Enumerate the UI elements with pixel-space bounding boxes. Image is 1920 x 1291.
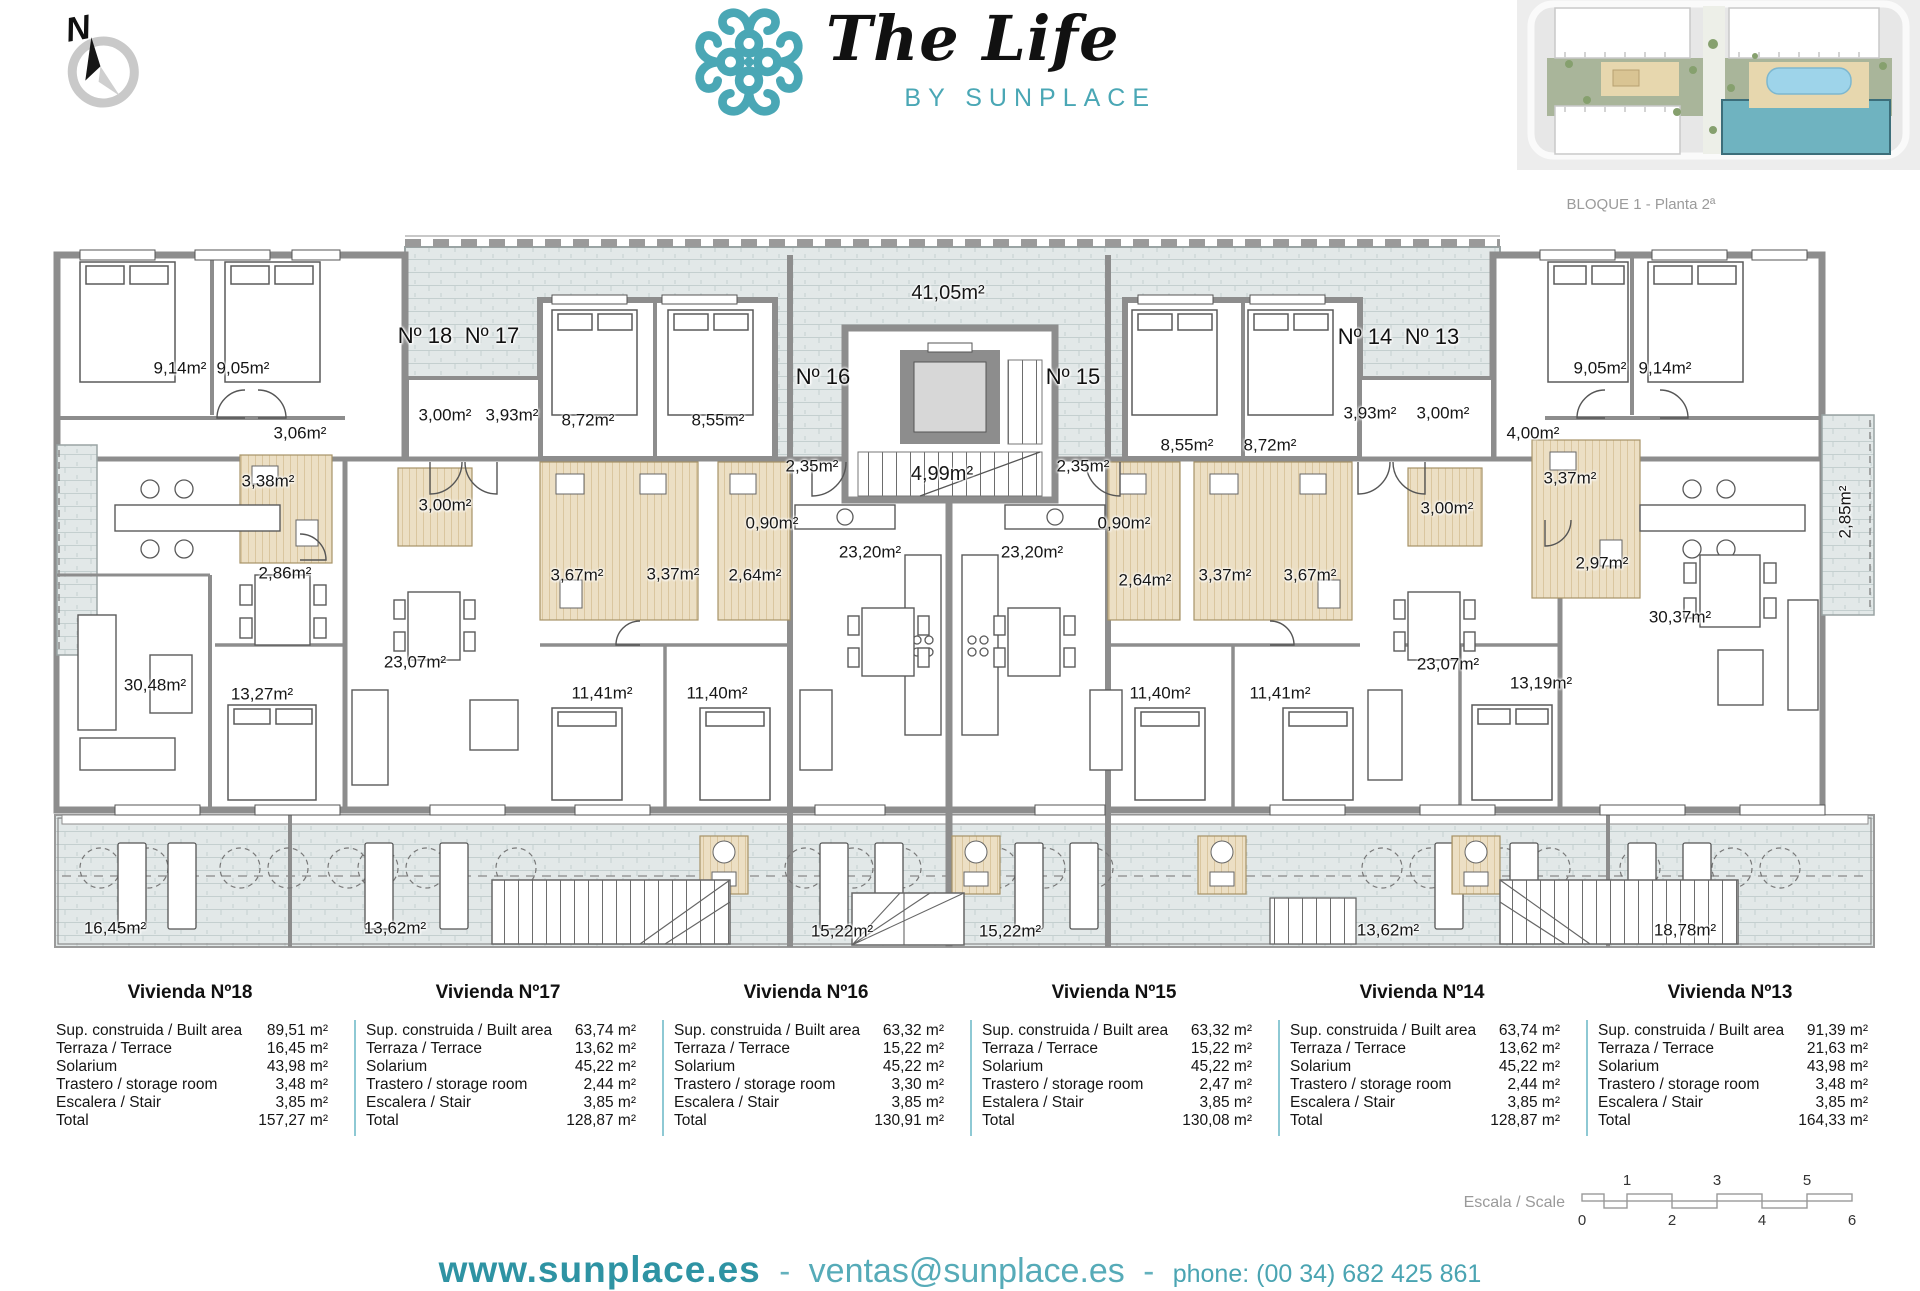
row-label: Trastero / storage room [56,1076,217,1094]
scale-bar [1570,1188,1870,1216]
row-value: 2,44 m² [1507,1076,1560,1094]
row-value: 63,32 m² [1191,1022,1252,1040]
vivienda-table: Vivienda Nº16Sup. construida / Built are… [652,982,960,1136]
vivienda-row: Trastero / storage room3,48 m² [1598,1076,1868,1094]
compass-n-label: N [63,8,95,50]
row-value: 3,48 m² [1815,1076,1868,1094]
row-value: 3,85 m² [1199,1094,1252,1112]
row-value: 45,22 m² [575,1058,636,1076]
vivienda-table: Vivienda Nº15Sup. construida / Built are… [960,982,1268,1136]
row-value: 45,22 m² [883,1058,944,1076]
row-label: Solarium [982,1058,1043,1076]
sunplace-knot-icon [688,4,810,120]
footer-website: www.sunplace.es [439,1249,761,1290]
vivienda-title: Vivienda Nº13 [1586,982,1874,1004]
row-label: Terraza / Terrace [366,1040,482,1058]
vivienda-row: Solarium43,98 m² [1598,1058,1868,1076]
row-label: Escalera / Stair [674,1094,779,1112]
vivienda-row: Estalera / Stair3,85 m² [982,1094,1252,1112]
row-value: 164,33 m² [1798,1112,1868,1130]
row-value: 3,85 m² [891,1094,944,1112]
row-value: 13,62 m² [575,1040,636,1058]
vivienda-row: Escalera / Stair3,85 m² [366,1094,636,1112]
row-value: 43,98 m² [267,1058,328,1076]
row-label: Sup. construida / Built area [1290,1022,1476,1040]
row-value: 2,44 m² [583,1076,636,1094]
row-value: 3,85 m² [583,1094,636,1112]
row-value: 130,91 m² [874,1112,944,1130]
row-label: Solarium [1290,1058,1351,1076]
row-value: 157,27 m² [258,1112,328,1130]
scale-tick-bottom: 6 [1848,1212,1856,1229]
scale-tick-bottom: 4 [1758,1212,1766,1229]
row-label: Escalera / Stair [56,1094,161,1112]
vivienda-row: Total130,08 m² [982,1112,1252,1130]
row-label: Terraza / Terrace [1598,1040,1714,1058]
vivienda-row: Total130,91 m² [674,1112,944,1130]
compass-icon: N [38,6,168,126]
row-value: 128,87 m² [1490,1112,1560,1130]
row-value: 45,22 m² [1499,1058,1560,1076]
row-label: Total [366,1112,399,1130]
row-label: Trastero / storage room [366,1076,527,1094]
scale-label: Escala / Scale [1440,1194,1565,1212]
scale-tick-top: 3 [1713,1172,1721,1189]
vivienda-row: Total128,87 m² [366,1112,636,1130]
row-value: 2,47 m² [1199,1076,1252,1094]
scale-tick-top: 1 [1623,1172,1631,1189]
vivienda-table: Vivienda Nº14Sup. construida / Built are… [1268,982,1576,1136]
row-label: Total [1598,1112,1631,1130]
row-label: Total [674,1112,707,1130]
vivienda-row: Escalera / Stair3,85 m² [674,1094,944,1112]
siteplan-thumbnail [1517,0,1920,170]
vivienda-row: Trastero / storage room3,48 m² [56,1076,328,1094]
row-value: 16,45 m² [267,1040,328,1058]
row-label: Solarium [56,1058,117,1076]
row-value: 21,63 m² [1807,1040,1868,1058]
vivienda-row: Sup. construida / Built area63,74 m² [366,1022,636,1040]
vivienda-tables: Vivienda Nº18Sup. construida / Built are… [36,982,1884,1136]
vivienda-row: Total128,87 m² [1290,1112,1560,1130]
vivienda-title: Vivienda Nº16 [662,982,950,1004]
footer-separator: - [779,1252,790,1289]
vivienda-row: Trastero / storage room3,30 m² [674,1076,944,1094]
vivienda-table: Vivienda Nº13Sup. construida / Built are… [1576,982,1884,1136]
row-value: 63,74 m² [575,1022,636,1040]
vivienda-row: Trastero / storage room2,47 m² [982,1076,1252,1094]
vivienda-row: Sup. construida / Built area63,74 m² [1290,1022,1560,1040]
vivienda-row: Trastero / storage room2,44 m² [366,1076,636,1094]
row-label: Trastero / storage room [982,1076,1143,1094]
siteplan-caption: BLOQUE 1 - Planta 2ª [1556,196,1726,213]
footer-contact: www.sunplace.es - ventas@sunplace.es - p… [0,1249,1920,1291]
vivienda-title: Vivienda Nº14 [1278,982,1566,1004]
row-label: Sup. construida / Built area [674,1022,860,1040]
vivienda-row: Sup. construida / Built area63,32 m² [674,1022,944,1040]
vivienda-table: Vivienda Nº17Sup. construida / Built are… [344,982,652,1136]
floor-plan-drawing [50,230,1880,955]
vivienda-row: Solarium43,98 m² [56,1058,328,1076]
row-value: 45,22 m² [1191,1058,1252,1076]
vivienda-row: Escalera / Stair3,85 m² [1598,1094,1868,1112]
vivienda-row: Solarium45,22 m² [366,1058,636,1076]
row-value: 128,87 m² [566,1112,636,1130]
row-value: 13,62 m² [1499,1040,1560,1058]
row-label: Escalera / Stair [1598,1094,1703,1112]
vivienda-row: Total157,27 m² [56,1112,328,1130]
footer-email: ventas@sunplace.es [809,1252,1125,1290]
vivienda-row: Terraza / Terrace16,45 m² [56,1040,328,1058]
vivienda-table: Vivienda Nº18Sup. construida / Built are… [36,982,344,1136]
row-label: Trastero / storage room [1598,1076,1759,1094]
row-label: Terraza / Terrace [56,1040,172,1058]
row-label: Escalera / Stair [1290,1094,1395,1112]
vivienda-row: Terraza / Terrace15,22 m² [982,1040,1252,1058]
row-label: Total [1290,1112,1323,1130]
row-label: Terraza / Terrace [982,1040,1098,1058]
row-label: Sup. construida / Built area [1598,1022,1784,1040]
vivienda-row: Trastero / storage room2,44 m² [1290,1076,1560,1094]
row-label: Sup. construida / Built area [56,1022,242,1040]
vivienda-row: Terraza / Terrace13,62 m² [366,1040,636,1058]
logo-subtitle: BY SUNPLACE [836,84,1156,113]
row-label: Sup. construida / Built area [366,1022,552,1040]
vivienda-row: Escalera / Stair3,85 m² [1290,1094,1560,1112]
row-value: 63,32 m² [883,1022,944,1040]
row-value: 43,98 m² [1807,1058,1868,1076]
row-label: Solarium [674,1058,735,1076]
vivienda-row: Total164,33 m² [1598,1112,1868,1130]
row-value: 89,51 m² [267,1022,328,1040]
vivienda-row: Sup. construida / Built area91,39 m² [1598,1022,1868,1040]
row-value: 3,48 m² [275,1076,328,1094]
footer-phone: phone: (00 34) 682 425 861 [1173,1260,1482,1288]
vivienda-row: Sup. construida / Built area89,51 m² [56,1022,328,1040]
row-label: Total [56,1112,89,1130]
row-label: Terraza / Terrace [1290,1040,1406,1058]
row-label: Escalera / Stair [366,1094,471,1112]
row-label: Terraza / Terrace [674,1040,790,1058]
row-value: 3,30 m² [891,1076,944,1094]
row-label: Solarium [1598,1058,1659,1076]
row-label: Estalera / Stair [982,1094,1084,1112]
row-value: 3,85 m² [1815,1094,1868,1112]
vivienda-title: Vivienda Nº15 [970,982,1258,1004]
row-label: Total [982,1112,1015,1130]
row-value: 15,22 m² [883,1040,944,1058]
row-label: Solarium [366,1058,427,1076]
vivienda-row: Escalera / Stair3,85 m² [56,1094,328,1112]
scale-tick-bottom: 2 [1668,1212,1676,1229]
row-value: 130,08 m² [1182,1112,1252,1130]
vivienda-row: Solarium45,22 m² [982,1058,1252,1076]
vivienda-row: Terraza / Terrace13,62 m² [1290,1040,1560,1058]
row-value: 63,74 m² [1499,1022,1560,1040]
row-value: 3,85 m² [275,1094,328,1112]
vivienda-title: Vivienda Nº17 [354,982,642,1004]
vivienda-row: Terraza / Terrace21,63 m² [1598,1040,1868,1058]
row-label: Trastero / storage room [1290,1076,1451,1094]
vivienda-row: Terraza / Terrace15,22 m² [674,1040,944,1058]
row-value: 91,39 m² [1807,1022,1868,1040]
vivienda-row: Sup. construida / Built area63,32 m² [982,1022,1252,1040]
scale-tick-top: 5 [1803,1172,1811,1189]
footer-separator: - [1143,1252,1154,1289]
scale-tick-bottom: 0 [1578,1212,1586,1229]
row-value: 3,85 m² [1507,1094,1560,1112]
vivienda-title: Vivienda Nº18 [46,982,334,1004]
row-label: Sup. construida / Built area [982,1022,1168,1040]
vivienda-row: Solarium45,22 m² [1290,1058,1560,1076]
vivienda-row: Solarium45,22 m² [674,1058,944,1076]
row-label: Trastero / storage room [674,1076,835,1094]
logo-title: The Life [826,2,1156,75]
row-value: 15,22 m² [1191,1040,1252,1058]
